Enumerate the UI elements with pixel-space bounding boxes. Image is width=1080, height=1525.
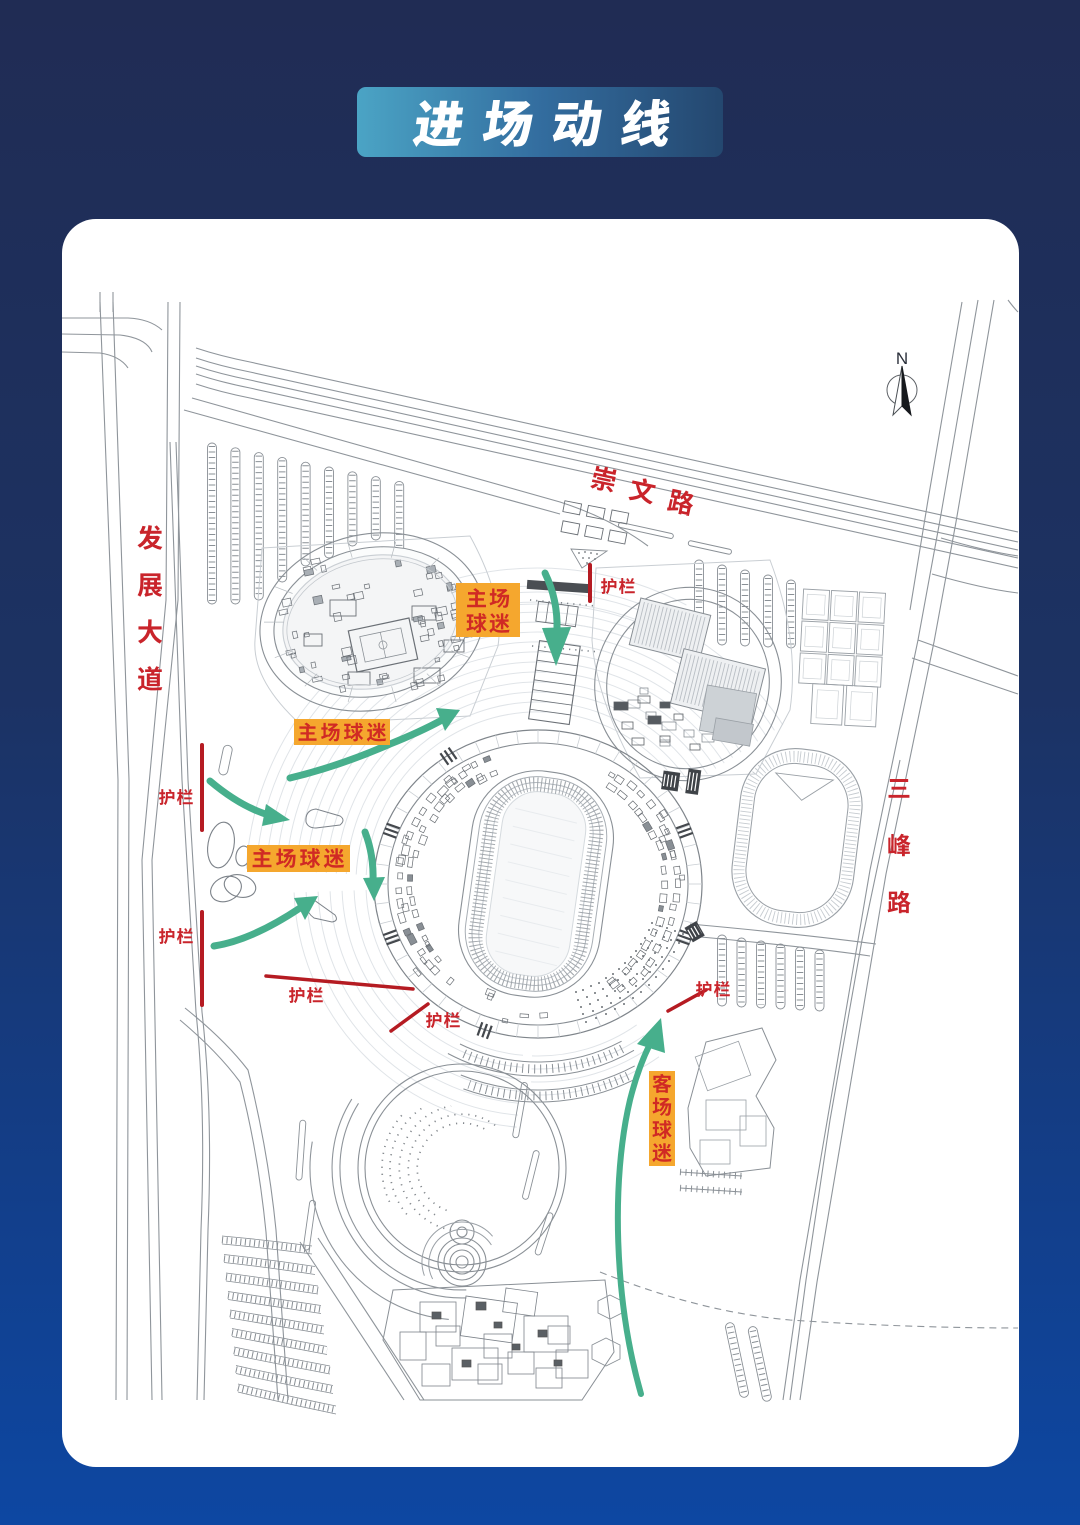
svg-text:N: N — [896, 349, 908, 368]
